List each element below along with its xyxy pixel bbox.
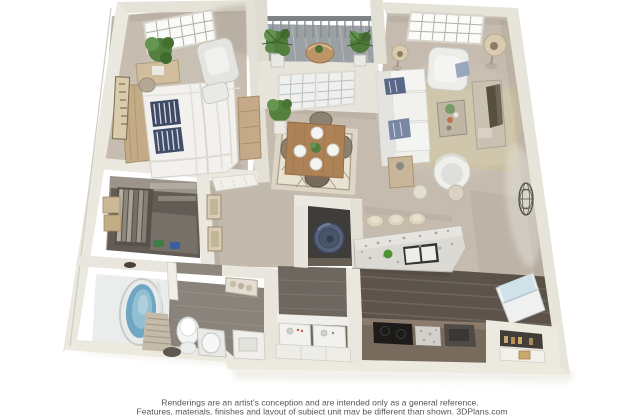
svg-text:Features, materials, finishes: Features, materials, finishes and layout… [137,407,508,415]
